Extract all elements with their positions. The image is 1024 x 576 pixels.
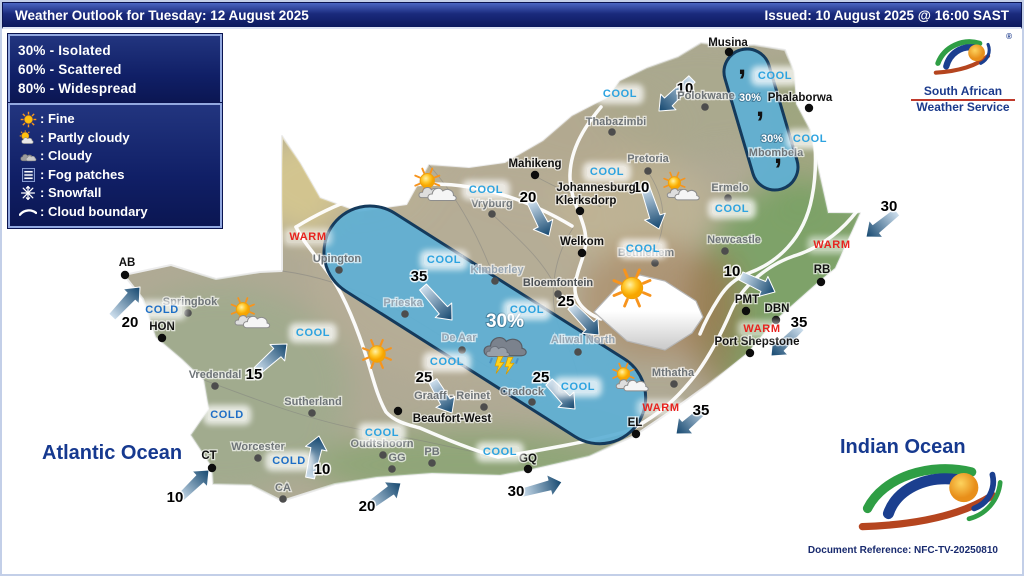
city-label: GG	[388, 452, 405, 464]
wind-speed-label: 10	[314, 461, 331, 478]
city-dot	[805, 104, 813, 112]
symbol-legend-label: : Cloudy	[40, 147, 92, 166]
city-dot	[480, 403, 488, 411]
wind-speed-label: 25	[533, 369, 550, 386]
city-label: Bloemfontein	[523, 277, 594, 289]
city-label: PB	[424, 446, 439, 458]
city-dot	[308, 409, 316, 417]
document-reference: Document Reference: NFC-TV-20250810	[808, 545, 998, 556]
city-label: Ermelo	[711, 182, 749, 194]
registered-mark: ®	[1006, 32, 1012, 41]
city-dot	[379, 451, 387, 459]
city-label: PMT	[735, 294, 759, 306]
city-label: Kimberley	[470, 264, 524, 276]
city-label: Johannesburg	[556, 182, 635, 194]
city-label: Prieska	[383, 297, 423, 309]
city-label: Vryburg	[471, 198, 513, 210]
city-label: Thabazimbi	[586, 116, 647, 128]
wind-speed-label: 15	[246, 366, 263, 383]
city-dot	[746, 349, 754, 357]
city-label: Vredendal	[189, 369, 242, 381]
city-label: Worcester	[231, 441, 285, 453]
city-label: Cradock	[500, 386, 545, 398]
city-label: Oudtshoorn	[351, 438, 414, 450]
wind-arrow: 30	[866, 198, 900, 237]
city-dot	[725, 48, 733, 56]
cloud-boundary-icon	[16, 206, 40, 218]
city-label: EL	[628, 417, 643, 429]
symbol-legend-item: : Snowfall	[16, 184, 214, 203]
saws-swoosh-icon	[930, 34, 996, 80]
symbol-legend-item: : Fine	[16, 110, 214, 129]
city-label: Welkom	[560, 236, 604, 248]
city-dot	[644, 167, 652, 175]
wind-arrow: 30	[508, 475, 562, 500]
city-label: DBN	[765, 303, 790, 315]
fog-icon	[16, 168, 40, 182]
city-dot	[554, 290, 562, 298]
city-dot	[488, 210, 496, 218]
wind-speed-label: 20	[122, 314, 139, 331]
symbol-legend: : Fine: Partly cloudy: Cloudy: Fog patch…	[8, 103, 222, 228]
city-dot	[211, 382, 219, 390]
city-dot	[254, 454, 262, 462]
city-dot	[394, 407, 402, 415]
wind-speed-label: 30	[881, 198, 898, 215]
city-label: Mahikeng	[508, 158, 561, 170]
city-label: Bethlehem	[618, 247, 674, 259]
city-dot	[401, 310, 409, 318]
symbol-legend-item: : Cloud boundary	[16, 203, 214, 222]
city-dot	[651, 259, 659, 267]
symbol-legend-item: : Partly cloudy	[16, 129, 214, 148]
symbol-legend-label: : Fog patches	[40, 166, 125, 185]
wind-speed-label: 35	[411, 268, 428, 285]
saws-logo: ® South African Weather Service	[908, 34, 1018, 114]
city-dot	[279, 495, 287, 503]
city-marker: CT	[201, 450, 216, 472]
probability-legend: 30% - Isolated60% - Scattered80% - Wides…	[8, 34, 222, 105]
rain-probability-label: 30%	[486, 311, 524, 332]
city-dot	[531, 171, 539, 179]
city-label: CT	[201, 450, 216, 462]
wind-speed-label: 35	[693, 402, 710, 419]
weather-outlook-screen: Weather Outlook for Tuesday: 12 August 2…	[0, 0, 1024, 576]
city-label: AB	[119, 257, 136, 269]
wind-speed-label: 25	[416, 369, 433, 386]
city-label: Newcastle	[707, 234, 761, 246]
city-label: Klerksdorp	[556, 195, 617, 207]
city-marker: Johannesburg	[556, 182, 635, 194]
city-label: Phalaborwa	[768, 92, 833, 104]
wind-speed-label: 30	[508, 483, 525, 500]
city-label: Aliwal North	[551, 334, 615, 346]
city-dot	[184, 309, 192, 317]
city-dot	[608, 128, 616, 136]
atlantic-ocean-label: Atlantic Ocean	[42, 442, 182, 465]
city-dot	[335, 266, 343, 274]
probability-legend-item: 60% - Scattered	[18, 60, 212, 79]
symbol-legend-item: : Cloudy	[16, 147, 214, 166]
city-dot	[428, 459, 436, 467]
rain-probability-label: 30%	[739, 92, 761, 104]
probability-legend-item: 30% - Isolated	[18, 41, 212, 60]
city-dot	[772, 316, 780, 324]
sun-icon	[16, 111, 40, 128]
partly-cloudy-icon	[16, 130, 40, 146]
city-label: Springbok	[163, 296, 218, 308]
city-dot	[742, 307, 750, 315]
city-dot	[388, 465, 396, 473]
city-label: GQ	[519, 453, 537, 465]
city-label: CA	[275, 482, 291, 494]
city-label: Musina	[708, 37, 748, 49]
city-label: Pretoria	[627, 153, 669, 165]
wind-speed-label: 20	[359, 498, 376, 515]
city-label: Mthatha	[652, 367, 695, 379]
city-dot	[578, 249, 586, 257]
symbol-legend-label: : Snowfall	[40, 184, 101, 203]
symbol-legend-item: : Fog patches	[16, 166, 214, 185]
city-label: Beaufort-West	[413, 413, 492, 425]
symbol-legend-label: : Fine	[40, 110, 75, 129]
city-dot	[721, 247, 729, 255]
probability-legend-item: 80% - Widespread	[18, 79, 212, 98]
city-dot	[576, 207, 584, 215]
city-dot	[491, 277, 499, 285]
city-marker: Mbombela	[749, 147, 804, 159]
city-label: Port Shepstone	[715, 336, 800, 348]
city-dot	[458, 346, 466, 354]
logo-text-line1: South African	[908, 85, 1018, 98]
wind-speed-label: 10	[167, 489, 184, 506]
city-label: Graaff - Reinet	[414, 390, 490, 402]
symbol-legend-label: : Partly cloudy	[40, 129, 130, 148]
city-dot	[528, 398, 536, 406]
city-label: Mbombela	[749, 147, 804, 159]
logo-text-line2: Weather Service	[908, 101, 1018, 114]
city-label: HON	[149, 321, 175, 333]
city-label: Polokwane	[677, 90, 734, 102]
snowflake-icon	[16, 185, 40, 201]
city-dot	[524, 465, 532, 473]
symbol-legend-label: : Cloud boundary	[40, 203, 148, 222]
city-dot	[701, 103, 709, 111]
city-dot	[158, 334, 166, 342]
wind-speed-label: 20	[520, 189, 537, 206]
cloudy-icon	[16, 149, 40, 163]
wind-arrow: 20	[359, 482, 401, 515]
city-dot	[724, 194, 732, 202]
city-label: RB	[814, 264, 831, 276]
wind-arrow: 35	[676, 402, 710, 434]
city-dot	[670, 380, 678, 388]
wind-arrow: 10	[167, 470, 209, 506]
city-dot	[632, 430, 640, 438]
city-label: Upington	[313, 253, 362, 265]
wind-arrow: 20	[109, 287, 140, 331]
city-label: Sutherland	[284, 396, 341, 408]
city-dot	[817, 278, 825, 286]
rain-probability-label: 30%	[761, 133, 783, 145]
drizzle-symbol: ,	[738, 48, 746, 81]
city-dot	[208, 464, 216, 472]
saws-logo-large	[852, 456, 1008, 545]
wind-speed-label: 10	[724, 263, 741, 280]
wind-speed-label: 35	[791, 314, 808, 331]
city-dot	[121, 271, 129, 279]
city-dot	[574, 348, 582, 356]
city-label: De Aar	[441, 332, 477, 344]
